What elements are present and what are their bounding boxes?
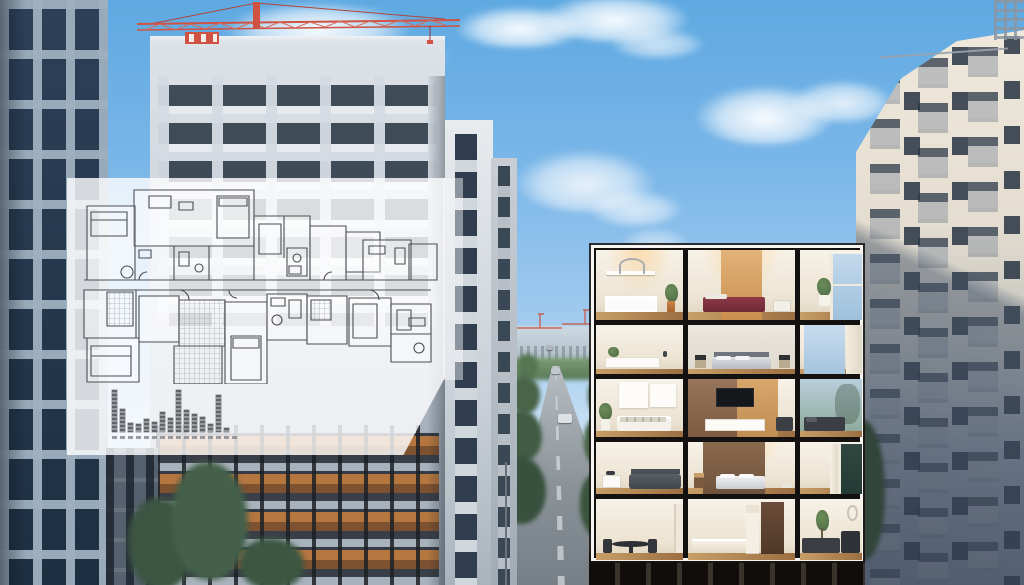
chart-bar [200,417,205,432]
cutaway-room-tv [688,379,795,437]
curtain [830,444,839,494]
window [830,254,862,321]
street-lamp-post [505,462,507,585]
pillow [705,294,726,299]
window-dark-view [838,444,862,494]
chart-bar [144,419,149,432]
chart-bar [176,390,181,432]
chair [603,539,612,552]
cutaway-room-kitchen [688,499,795,560]
pillow [716,356,731,360]
cutaway-room-bedroom-red [688,250,795,320]
chart-bar [184,410,189,432]
plant-pot [667,301,675,312]
round-mirror [847,505,858,521]
tower-crane [115,0,475,58]
left-tower-shade [0,0,26,585]
blueprint-sheet-edge [443,178,463,380]
car [546,345,553,350]
cutaway-room-window [800,325,862,374]
pillow [720,474,735,479]
kitchen-counter [692,539,748,554]
desk [605,296,657,313]
cutaway-room-console [596,325,683,374]
cutaway-room-chaise [800,379,862,437]
tree [240,538,304,585]
chart-bar [224,428,229,432]
planter [819,295,830,306]
arc-lamp [619,258,645,273]
chart-bar [216,395,221,432]
cushion [806,417,817,422]
sideboard [605,357,661,368]
cloud [610,28,705,58]
chart-bar [192,414,197,432]
bed-red [703,297,765,312]
chart-caption-microtext [112,436,240,439]
crane-boom [137,20,460,24]
chart-bar [160,412,165,432]
sectional-arm [841,531,860,553]
chart-bar [208,424,213,432]
scene [0,0,1024,585]
cutaway-room-bedroom-brown [688,442,795,494]
pillow [739,474,754,479]
chart-bar [120,409,125,432]
lounge-chair [776,417,793,431]
street-tree [518,354,538,378]
tall-cabinet [746,505,759,554]
chart-bar [168,418,173,432]
apartment-cutaway-panel [591,245,863,561]
chart-bar [136,424,141,432]
plant [608,347,618,358]
floor-plan-drawing [79,188,443,384]
door-brown [761,502,785,554]
cutaway-room-living-white [596,379,683,437]
tv-screen [716,388,755,407]
sectional-sofa [802,538,839,553]
crane-mast [253,2,260,29]
mini-bar-chart [112,388,242,432]
cushions [620,417,665,422]
window [804,325,845,374]
cloud [588,190,683,226]
chair [648,539,657,552]
nightstand-lamp [779,355,790,368]
cutaway-room-bedroom-dark [596,442,683,494]
pillow [735,356,750,360]
cutaway-room-living-sectional [800,499,862,560]
plant-pot [601,419,610,430]
wall-panel [619,382,649,408]
table-leg [629,545,632,552]
cutaway-room-bedroom-grey [688,325,795,374]
chart-bar [112,390,117,432]
roof-structure [994,0,1024,40]
media-console [705,419,765,431]
chart-bar [128,423,133,432]
plant [665,284,678,302]
bed-dark [629,474,681,489]
curtain [846,325,862,374]
cutaway-room-window-2 [800,442,862,494]
nightstand [602,475,621,487]
side-table [773,300,791,312]
table-lamp [663,351,667,357]
blueprint-overlay [67,178,445,455]
window-stack [498,166,510,585]
wall-opening [674,504,683,553]
wall-panel [650,384,676,407]
plant [599,403,611,419]
nightstand-lamp [694,473,704,488]
cutaway-room-home-office [596,250,683,320]
nightstand-lamp [695,355,706,368]
background-tower [491,158,517,585]
cutaway-room-dining [596,499,683,560]
chart-bar [152,422,157,432]
car [551,368,560,374]
window-mullion [830,284,862,286]
car [558,414,572,423]
decor-items [606,471,615,475]
cutaway-room-window-nook [800,250,862,320]
tree [172,462,248,580]
bench [782,483,792,488]
plant [817,278,831,296]
